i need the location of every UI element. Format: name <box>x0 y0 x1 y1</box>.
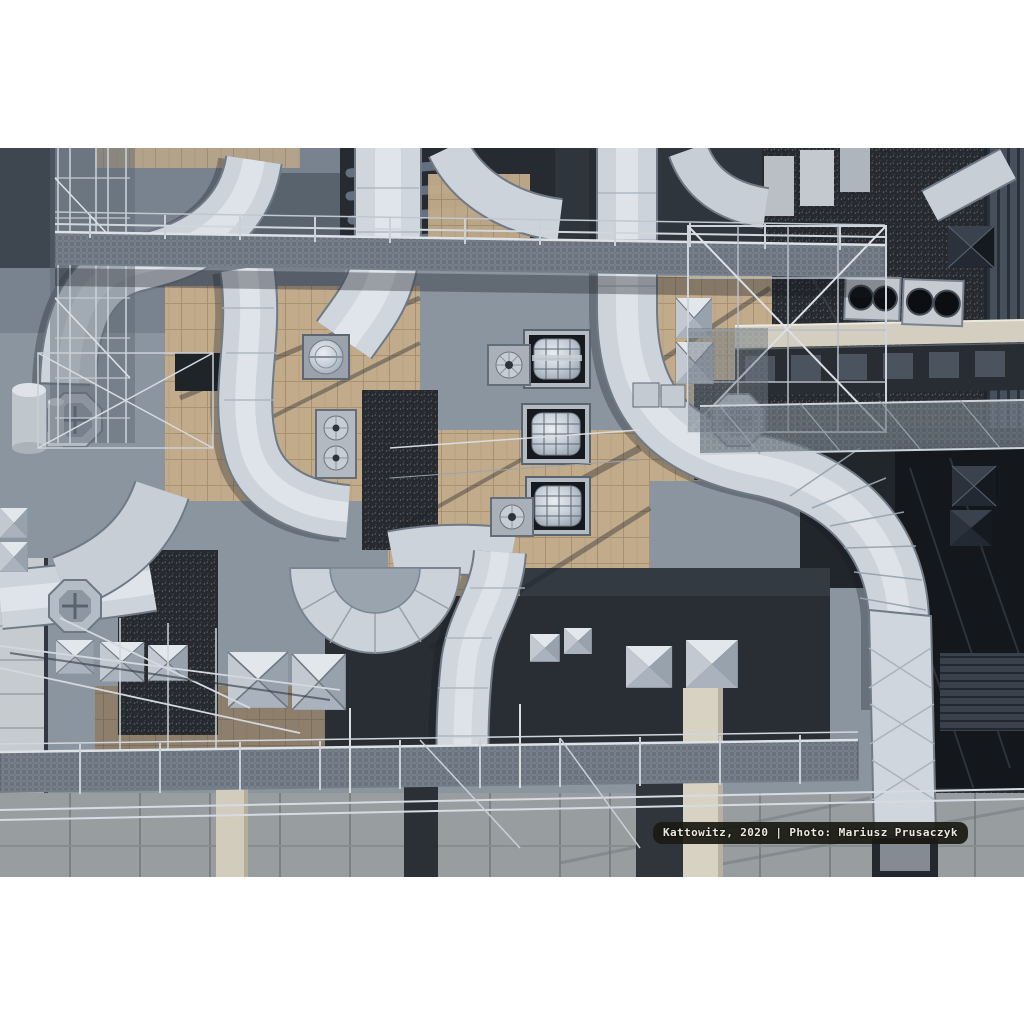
bottom-white-margin <box>0 877 1024 1024</box>
upper-right-mesh-walkway <box>700 400 1024 454</box>
top-white-margin <box>0 0 1024 148</box>
dark-pyramid-skylight <box>952 466 996 506</box>
photo-caption: Kattowitz, 2020 | Photo: Mariusz Prusacz… <box>653 822 968 844</box>
dark-pyramid-skylight <box>950 510 992 546</box>
rooftop-scene <box>0 148 1024 877</box>
dark-pyramid-skylight <box>948 226 994 268</box>
twin-fan-box <box>316 410 356 478</box>
rooftop-aerial-photo: Kattowitz, 2020 | Photo: Mariusz Prusacz… <box>0 148 1024 877</box>
round-dome-skylight <box>303 335 349 379</box>
right-walkway <box>735 320 1024 396</box>
